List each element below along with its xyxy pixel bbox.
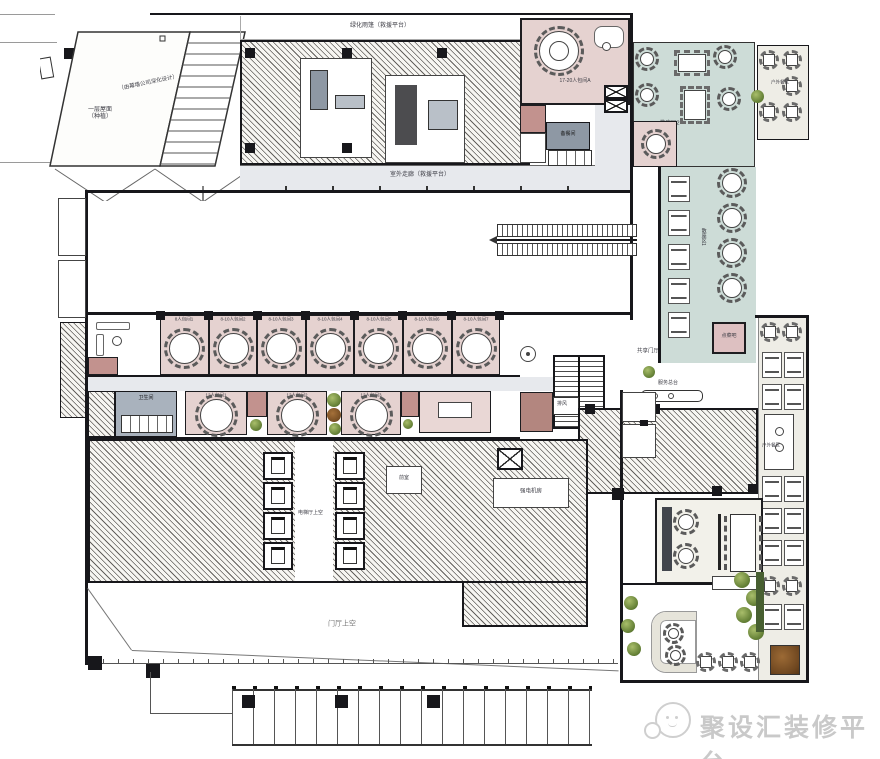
booth-table <box>762 540 782 566</box>
service-room <box>622 424 656 458</box>
equipment-block <box>428 100 458 130</box>
long-table <box>730 514 756 572</box>
booth-table <box>784 604 804 630</box>
elevator <box>335 542 365 570</box>
square-table <box>764 326 776 338</box>
outdoor-meeting-room <box>655 498 763 584</box>
screen-panel <box>718 514 721 570</box>
pantry-label: 备餐间 <box>561 131 576 137</box>
grill-station <box>764 414 794 470</box>
decor-dot <box>526 352 530 356</box>
watermark-text: 聚设汇装修平台 <box>700 708 880 759</box>
floor-plan: 一层屋面 （种植） （由幕墙公司深化设计） 绿化雨篷（救援平台） 室外走廊（救援… <box>0 0 880 759</box>
side-room <box>58 198 86 256</box>
planter-box-brown <box>770 645 800 675</box>
side-table <box>602 42 611 51</box>
column <box>88 656 102 670</box>
private-room: 8-10人包间6 <box>403 315 452 375</box>
round-table <box>461 333 492 364</box>
equipment-block <box>335 95 365 109</box>
boh-tongue <box>462 583 588 627</box>
round-table <box>363 333 394 364</box>
shaft-box <box>604 99 628 113</box>
planter-bush <box>736 607 752 623</box>
shaft-hatch <box>88 391 115 437</box>
order-bar: 点菜吧 <box>712 322 746 354</box>
round-table <box>722 173 742 193</box>
private-room-label: 8人包间1 <box>175 317 194 322</box>
booth-table <box>784 476 804 502</box>
rect-table-8 <box>678 54 706 72</box>
logo-eye <box>666 716 669 719</box>
booth-table <box>762 508 782 534</box>
column <box>146 664 160 678</box>
green-canopy-label: 绿化雨篷（救援平台） <box>350 22 410 29</box>
equipment-block <box>310 70 328 110</box>
toilet-stalls <box>548 150 592 166</box>
service-room <box>622 392 656 422</box>
elevator <box>335 512 365 540</box>
shaft-box <box>604 85 628 99</box>
service-room <box>520 133 546 163</box>
elevator <box>263 512 293 540</box>
front-chamber-label: 前室 <box>399 475 409 481</box>
elevator <box>263 542 293 570</box>
square-table <box>744 656 756 668</box>
column <box>712 486 722 496</box>
context-line <box>0 14 55 15</box>
column <box>437 48 447 58</box>
round-table <box>722 92 736 106</box>
canopy-connector <box>150 713 232 714</box>
column <box>748 484 758 494</box>
restroom-label: 卫生间 <box>139 395 154 401</box>
column <box>350 311 359 320</box>
column <box>342 143 352 153</box>
shaft-box <box>497 448 523 470</box>
column <box>398 311 407 320</box>
equipment-block <box>395 85 417 145</box>
logo-eye <box>675 716 678 719</box>
shared-lobby-label: 共享门厅 <box>637 348 659 354</box>
planter-bush-brown <box>327 408 341 422</box>
private-room-label: 8-10人包间3 <box>269 317 294 322</box>
booth-table <box>762 604 782 630</box>
planter-bush <box>329 423 341 435</box>
roof-edge-line <box>150 13 633 15</box>
planter-strip <box>756 572 764 632</box>
private-room: 8-10人包间2 <box>209 315 258 375</box>
stool <box>668 393 674 399</box>
lazy-susan <box>549 41 569 61</box>
roof-label-line2: （种植） <box>88 113 112 120</box>
side-room <box>58 260 86 318</box>
private-room-label: 8-10人包间5 <box>366 317 391 322</box>
private-room: 8人包间1 <box>160 315 209 375</box>
flower-room <box>633 121 677 167</box>
booth-table <box>784 384 804 410</box>
booth-table <box>668 210 690 236</box>
service-desk-label: 服务总台 <box>658 380 678 386</box>
order-bar-label: 点菜吧 <box>722 333 737 339</box>
service-nook <box>401 391 419 417</box>
corridor <box>88 377 560 391</box>
plaza-diagonal <box>87 588 132 651</box>
vip-room-label: 17-20人包间A <box>559 78 590 84</box>
round-table <box>668 628 679 639</box>
round-table <box>722 278 742 298</box>
round-table <box>722 208 742 228</box>
pantry-room: 备餐间 <box>546 122 590 150</box>
banquet-round-table <box>539 31 579 71</box>
roof-label: 一层屋面 （种植） <box>88 106 112 120</box>
planter-bush <box>327 393 341 407</box>
service-room-pink <box>520 105 546 133</box>
private-room-12: 12人包间1 <box>185 391 247 435</box>
booth-table <box>668 312 690 338</box>
round-table <box>640 52 654 66</box>
electrical-room: 强电机房 <box>493 478 569 508</box>
roof-label-line1: 一层屋面 <box>88 106 112 113</box>
private-room-12: 12人包间2 <box>267 391 327 435</box>
booth-table <box>784 352 804 378</box>
round-table <box>355 399 388 432</box>
sofa <box>96 334 104 356</box>
side-hatch <box>60 322 86 418</box>
grill-burner <box>775 427 784 436</box>
round-table <box>315 333 346 364</box>
round-table <box>169 333 200 364</box>
planter-bush <box>621 619 635 633</box>
planter-bush <box>624 596 638 610</box>
door-block <box>640 420 648 426</box>
planter-bush <box>627 642 641 656</box>
toilet-stalls <box>121 415 173 433</box>
column <box>253 311 262 320</box>
outdoor-terrace-label: 户外餐区 <box>762 443 780 448</box>
column <box>335 695 348 708</box>
canopy-line <box>232 744 592 746</box>
wall <box>85 190 633 193</box>
elevator-hall-label: 电梯厅上空 <box>298 510 323 516</box>
private-room: 8-10人包间5 <box>354 315 403 375</box>
booth-table <box>762 384 782 410</box>
planter-bush <box>734 572 750 588</box>
private-room: 8-10人包间3 <box>257 315 306 375</box>
chair-row <box>759 516 762 570</box>
column <box>447 311 456 320</box>
elevator <box>335 452 365 480</box>
column <box>585 404 595 414</box>
private-room-label: 8-10人包间6 <box>415 317 440 322</box>
round-table <box>718 50 732 64</box>
restroom-block: 卫生间 <box>115 391 177 437</box>
elevator <box>263 452 293 480</box>
escalator-divider <box>497 239 637 241</box>
private-room: 8-10人包间7 <box>452 315 501 375</box>
lobby-void-label: 门厅上空 <box>328 620 356 628</box>
lounge <box>88 315 160 375</box>
booth-table <box>762 476 782 502</box>
private-room-label: 8-10人包间2 <box>220 317 245 322</box>
planter-bush <box>643 366 655 378</box>
private-room-label: 8-10人包间4 <box>318 317 343 322</box>
wall <box>806 315 809 683</box>
sofa <box>96 322 130 330</box>
round-table <box>722 243 742 263</box>
wall <box>620 680 809 683</box>
round-table <box>266 333 297 364</box>
elevator <box>263 482 293 510</box>
void-hatch <box>578 408 758 494</box>
escalator <box>497 224 637 237</box>
logo-mouth <box>668 723 677 727</box>
open-dining-1-label: 散座区1 <box>700 228 706 246</box>
column <box>301 311 310 320</box>
column <box>245 48 255 58</box>
booth-table <box>784 540 804 566</box>
exhaust-label: 排风 <box>557 401 567 407</box>
column <box>242 695 255 708</box>
banquette <box>662 507 672 571</box>
booth-table <box>668 244 690 270</box>
roof-stair-drawing <box>40 16 255 201</box>
square-table <box>700 656 712 668</box>
booth-table <box>762 352 782 378</box>
round-table <box>670 650 681 661</box>
square-table <box>763 54 775 66</box>
side-room-brown <box>520 392 553 432</box>
column <box>156 311 165 320</box>
private-room-12: 12人包间3 <box>341 391 401 435</box>
private-room-label: 8-10人包间7 <box>463 317 488 322</box>
square-table <box>786 580 798 592</box>
square-table <box>722 656 734 668</box>
round-table <box>412 333 443 364</box>
round-table <box>678 514 694 530</box>
service-nook <box>88 357 118 375</box>
stage-box <box>438 402 472 418</box>
column <box>495 311 504 320</box>
wall <box>630 14 633 320</box>
outdoor-corridor-label: 室外走廊（救援平台） <box>390 171 450 178</box>
square-table <box>764 580 776 592</box>
service-corridor <box>595 105 630 190</box>
round-table <box>218 333 249 364</box>
electrical-room-label: 强电机房 <box>520 488 542 494</box>
column <box>245 143 255 153</box>
booth-table <box>784 508 804 534</box>
plaza-edge-line <box>88 663 618 664</box>
round-table <box>646 134 666 154</box>
round-table <box>281 399 314 432</box>
front-chamber: 前室 <box>386 466 422 494</box>
function-room <box>419 391 491 433</box>
column <box>342 48 352 58</box>
canopy-ribs <box>232 689 592 744</box>
column <box>204 311 213 320</box>
planter-bush <box>751 90 764 103</box>
round-table <box>640 88 654 102</box>
chair-row <box>724 516 727 570</box>
square-table <box>786 326 798 338</box>
escalator <box>497 243 637 256</box>
booth-table <box>668 176 690 202</box>
private-room: 8-10人包间4 <box>306 315 355 375</box>
booth-table <box>668 278 690 304</box>
square-table <box>786 54 798 66</box>
canopy-connector <box>150 672 151 714</box>
column <box>427 695 440 708</box>
round-table <box>200 399 233 432</box>
rect-table-8 <box>684 90 706 120</box>
watermark-logo-bubble <box>644 722 661 739</box>
outdoor-dining-ne-label: 户外餐区 <box>771 80 789 85</box>
elevator <box>335 482 365 510</box>
round-table <box>678 548 694 564</box>
planter-bush <box>250 419 262 431</box>
arrow-icon <box>489 236 497 244</box>
square-table <box>786 106 798 118</box>
planter-bush <box>403 419 413 429</box>
square-table <box>763 106 775 118</box>
coffee-table <box>112 336 122 346</box>
service-nook <box>247 391 267 417</box>
